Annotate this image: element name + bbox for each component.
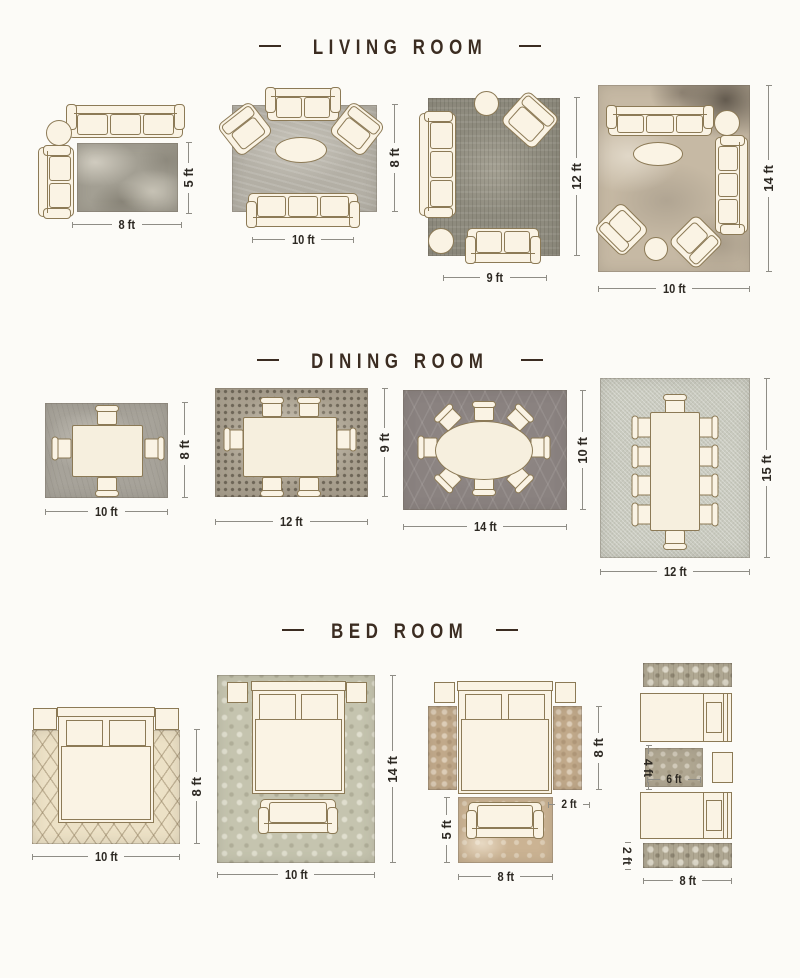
dining-chair [57,439,72,459]
bed-headboard [457,681,553,691]
dimension-line [215,521,273,522]
dimension-line [188,142,189,163]
dimension-label: 8 ft [189,777,204,797]
sofa-seats [617,115,703,133]
sofa-seats [276,97,330,118]
dimension-line [310,521,368,522]
bed-pillow [301,694,338,720]
sofa-seats [430,122,453,207]
dimension-label: 5 ft [181,168,196,188]
height-dimension: 10 ft [574,390,590,510]
sofa-arm [43,208,71,219]
sofa-arm [258,807,269,834]
dimension-line [458,876,491,877]
width-dimension: 10 ft [598,280,750,296]
dimension-label: 2 ft [561,797,576,811]
sofa-arm [246,201,257,228]
living-room-title: LIVING ROOM [0,36,800,60]
dimension-line [583,804,590,805]
height-dimension: 8 ft [386,104,402,212]
bed-mattress [61,746,151,820]
dimension-line [648,745,649,754]
dimension-label: 10 ft [95,849,118,864]
dining-table [650,412,700,531]
dimension-label: 14 ft [761,165,776,192]
accent-rug-width-dimension: 8 ft [458,868,553,884]
dimension-label: 9 ft [487,270,504,285]
dimension-label: 10 ft [95,504,118,519]
width-dimension: 10 ft [45,503,168,519]
dining-chair [97,410,117,425]
runner-height-dimension: 8 ft [590,706,606,790]
bed-divider [703,793,704,838]
dimension-line [692,288,750,289]
bed [458,682,552,794]
sofa-cushion [504,231,530,253]
dining-chair [699,476,714,496]
dimension-line [576,97,577,158]
dimension-line [394,104,395,143]
dining-room-title: DINING ROOM [0,350,800,374]
bed-pillow [706,702,722,734]
coffee-table-oval [633,142,683,166]
dimension-line [647,779,660,780]
sofa-arm [424,111,453,122]
dimension-line [142,224,182,225]
runner-rug [643,663,732,687]
dimension-line [582,390,583,432]
sofa-arm [330,87,341,113]
sofa-seats [257,196,349,217]
nightstand [434,682,455,703]
twin-bed [640,792,732,839]
sofa [715,137,748,233]
dimension-label: 10 ft [292,232,315,247]
dimension-label: 9 ft [377,433,392,453]
sofa-arm [327,807,338,834]
width-dimension: 12 ft [215,513,368,529]
ottoman-round [644,237,668,261]
dimension-label: 8 ft [497,869,514,884]
sofa-cushion [304,97,330,118]
sofa [248,193,358,227]
runner-width-dimension: 2 ft [548,796,590,812]
dimension-line [196,801,197,844]
runner-rug [553,706,582,790]
sofa-arm [720,224,746,235]
twin-bed [640,693,732,742]
bed-headboard [251,681,346,691]
dimension-line [766,378,767,450]
height-dimension: 12 ft [568,97,584,256]
ottoman-round [428,228,454,254]
sofa-arm [424,207,453,218]
nightstand [346,682,367,703]
dimension-line [702,880,732,881]
dimension-line [510,277,547,278]
dimension-line [384,457,385,497]
section-title-text: LIVING ROOM [313,36,488,60]
sofa-arm [265,87,276,113]
sofa-arm [349,201,360,228]
dimension-line [384,388,385,428]
dimension-line [314,874,375,875]
dimension-line [196,729,197,772]
sofa-cushion [718,199,738,224]
dimension-line [446,845,447,863]
bed-mattress [461,719,549,791]
dimension-label: 8 ft [679,873,696,888]
bench [260,799,336,833]
dimension-line [600,571,657,572]
nightstand [33,708,57,730]
side-table-round [46,120,72,146]
dimension-label: 12 ft [664,564,687,579]
dining-table [72,425,143,477]
width-dimension: 8 ft [72,216,182,232]
dimension-label: 8 ft [591,738,606,758]
title-dash [521,359,543,361]
sofa [608,106,712,136]
sofa-arm [465,236,476,264]
dimension-label: 14 ft [385,756,400,783]
bed-headboard [723,693,729,742]
sofa-cushion [110,114,141,135]
side-table-round [714,110,740,136]
dining-table-oval [435,421,533,480]
dimension-label: 14 ft [474,519,497,534]
dimension-line [598,763,599,790]
dimension-line [688,779,701,780]
dimension-line [45,511,88,512]
dining-chair [299,477,319,492]
bed-divider [703,694,704,741]
nightstand [555,682,576,703]
rug-size-guide: LIVING ROOM 8 ft 5 ft [0,0,800,978]
sofa [267,88,339,121]
sofa-cushion [430,151,453,178]
runner-rug [428,706,457,790]
sofa-cushion [430,122,453,149]
bed-mattress [255,719,342,791]
dimension-line [693,571,750,572]
height-dimension: 8 ft [176,402,192,498]
sofa-cushion [430,180,453,207]
nightstand [155,708,179,730]
width-dimension: 9 ft [443,269,547,285]
dimension-line [184,465,185,498]
bed-pillow [508,694,545,720]
height-dimension: 15 ft [758,378,774,558]
dimension-line [124,856,180,857]
sofa-cushion [320,196,349,217]
dimension-line [768,197,769,272]
dining-chair [262,477,282,492]
sofa-cushion [269,802,327,823]
dimension-line [125,511,168,512]
section-title-text: BED ROOM [331,620,468,644]
dimension-line [443,277,480,278]
bed [252,682,345,794]
sofa-seats [476,231,530,253]
sofa-cushion [143,114,174,135]
sofa-seats [49,156,71,208]
height-dimension: 8 ft [188,729,204,844]
dimension-label: 2 ft [620,847,634,865]
nightstand [227,682,248,703]
dining-chair [262,402,282,417]
dining-chair [699,418,714,438]
dimension-line [643,880,673,881]
dining-chair [229,430,244,450]
bed-headboard [723,792,729,839]
title-dash [259,45,281,47]
height-dimension: 5 ft [180,142,196,214]
sofa-seats [477,805,533,828]
title-dash [519,45,541,47]
sofa-cushion [77,114,108,135]
dimension-line [403,526,467,527]
section-title-text: DINING ROOM [311,350,488,374]
sofa-arm [703,105,714,129]
accent-rug-height-dimension: 5 ft [438,797,454,863]
height-dimension: 14 ft [384,675,400,863]
sofa-arm [466,810,477,839]
sofa-arm [606,105,617,129]
runner-width-dimension: 8 ft [643,872,732,888]
runner-rug [643,843,732,868]
bed-pillow [109,720,147,746]
sofa-arm [530,236,541,264]
dimension-line [321,239,354,240]
dimension-line [394,173,395,212]
dimension-line [188,193,189,214]
bed-pillow [66,720,104,746]
dimension-label: 5 ft [439,820,454,840]
sofa-cushion [477,805,533,828]
dimension-line [446,797,447,815]
dimension-line [392,675,393,751]
dimension-label: 15 ft [759,455,774,482]
dimension-line [768,85,769,160]
dimension-label: 6 ft [666,772,681,786]
width-dimension: 14 ft [403,518,567,534]
bed-pillow [706,800,722,831]
coffee-table-oval [275,137,327,163]
bed-pillow [259,694,296,720]
sofa-cushion [49,156,71,181]
bed-room-title: BED ROOM [0,620,800,644]
bed [58,708,154,823]
dining-table [243,417,337,477]
dimension-line [503,526,567,527]
width-dimension: 10 ft [217,866,375,882]
side-table-round [474,91,499,116]
sofa-cushion [276,97,302,118]
loveseat [467,228,539,263]
sofa-cushion [288,196,317,217]
title-dash [282,629,304,631]
sofa-cushion [718,173,738,198]
sofa-arm [533,810,544,839]
dining-chair [299,402,319,417]
dimension-label: 10 ft [575,437,590,464]
dimension-line [252,239,285,240]
dimension-line [766,486,767,558]
dimension-line [598,706,599,733]
dimension-label: 10 ft [285,867,308,882]
area-rug [77,143,178,212]
dimension-line [576,195,577,256]
sofa-arm [174,104,185,130]
sofa-seats [718,146,738,224]
chaise-sofa [38,147,74,217]
dining-chair [665,530,685,545]
sofa [68,105,183,138]
dimension-line [582,468,583,510]
dimension-line [598,288,656,289]
sofa-cushion [257,196,286,217]
dining-chair [699,505,714,525]
width-dimension: 12 ft [600,563,750,579]
bed-headboard [57,707,155,717]
dimension-line [217,874,278,875]
dimension-label: 12 ft [280,514,303,529]
dimension-line [548,804,555,805]
sofa-cushion [718,146,738,171]
height-dimension: 9 ft [376,388,392,497]
sofa [419,113,456,216]
sofa-cushion [676,115,703,133]
sofa-seats [269,802,327,823]
sofa-cushion [646,115,673,133]
dimension-label: 10 ft [663,281,686,296]
bench [468,802,542,838]
title-dash [257,359,279,361]
sofa-arm [720,135,746,146]
height-dimension: 14 ft [760,85,776,272]
sofa-cushion [476,231,502,253]
dimension-line [32,856,88,857]
width-dimension: 10 ft [32,848,180,864]
sofa-cushion [617,115,644,133]
dimension-label: 8 ft [387,148,402,168]
width-dimension: 10 ft [252,231,354,247]
dimension-line [72,224,112,225]
dining-chair [699,447,714,467]
dimension-label: 8 ft [119,217,136,232]
sofa-cushion [49,183,71,208]
accent-rug-width-dimension: 6 ft [647,771,701,787]
dimension-line [392,787,393,863]
dimension-line [520,876,553,877]
dimension-line [184,402,185,435]
nightstand [712,752,733,783]
dining-chair [145,439,160,459]
bed-pillow [465,694,502,720]
sofa-arm [43,145,71,156]
dining-chair [474,406,494,421]
title-dash [496,629,518,631]
dimension-label: 12 ft [569,163,584,190]
runner-height-dimension: 2 ft [619,842,635,870]
dimension-label: 8 ft [177,440,192,460]
dining-chair [337,430,352,450]
dining-chair [97,477,117,492]
sofa-seats [77,114,174,135]
